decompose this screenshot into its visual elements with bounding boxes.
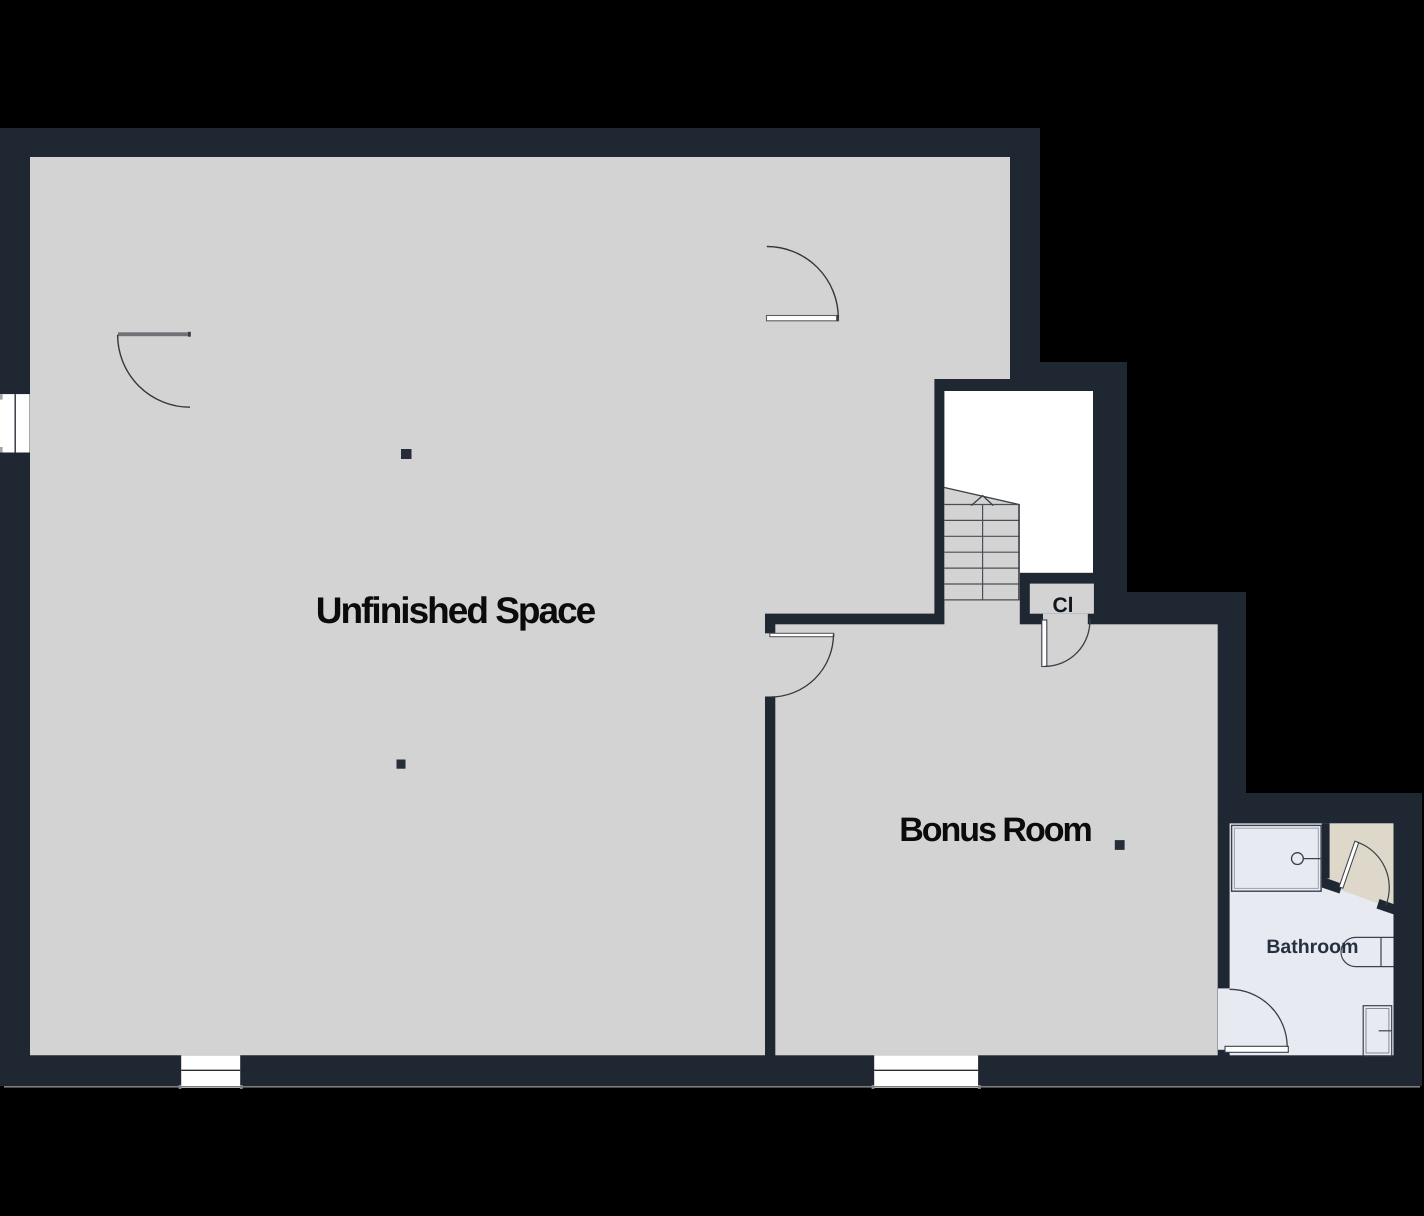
svg-text:Bonus Room: Bonus Room bbox=[899, 811, 1091, 849]
svg-text:Cl: Cl bbox=[1053, 594, 1074, 617]
svg-text:Unfinished Space: Unfinished Space bbox=[316, 590, 596, 631]
svg-text:Bathroom: Bathroom bbox=[1266, 936, 1358, 958]
